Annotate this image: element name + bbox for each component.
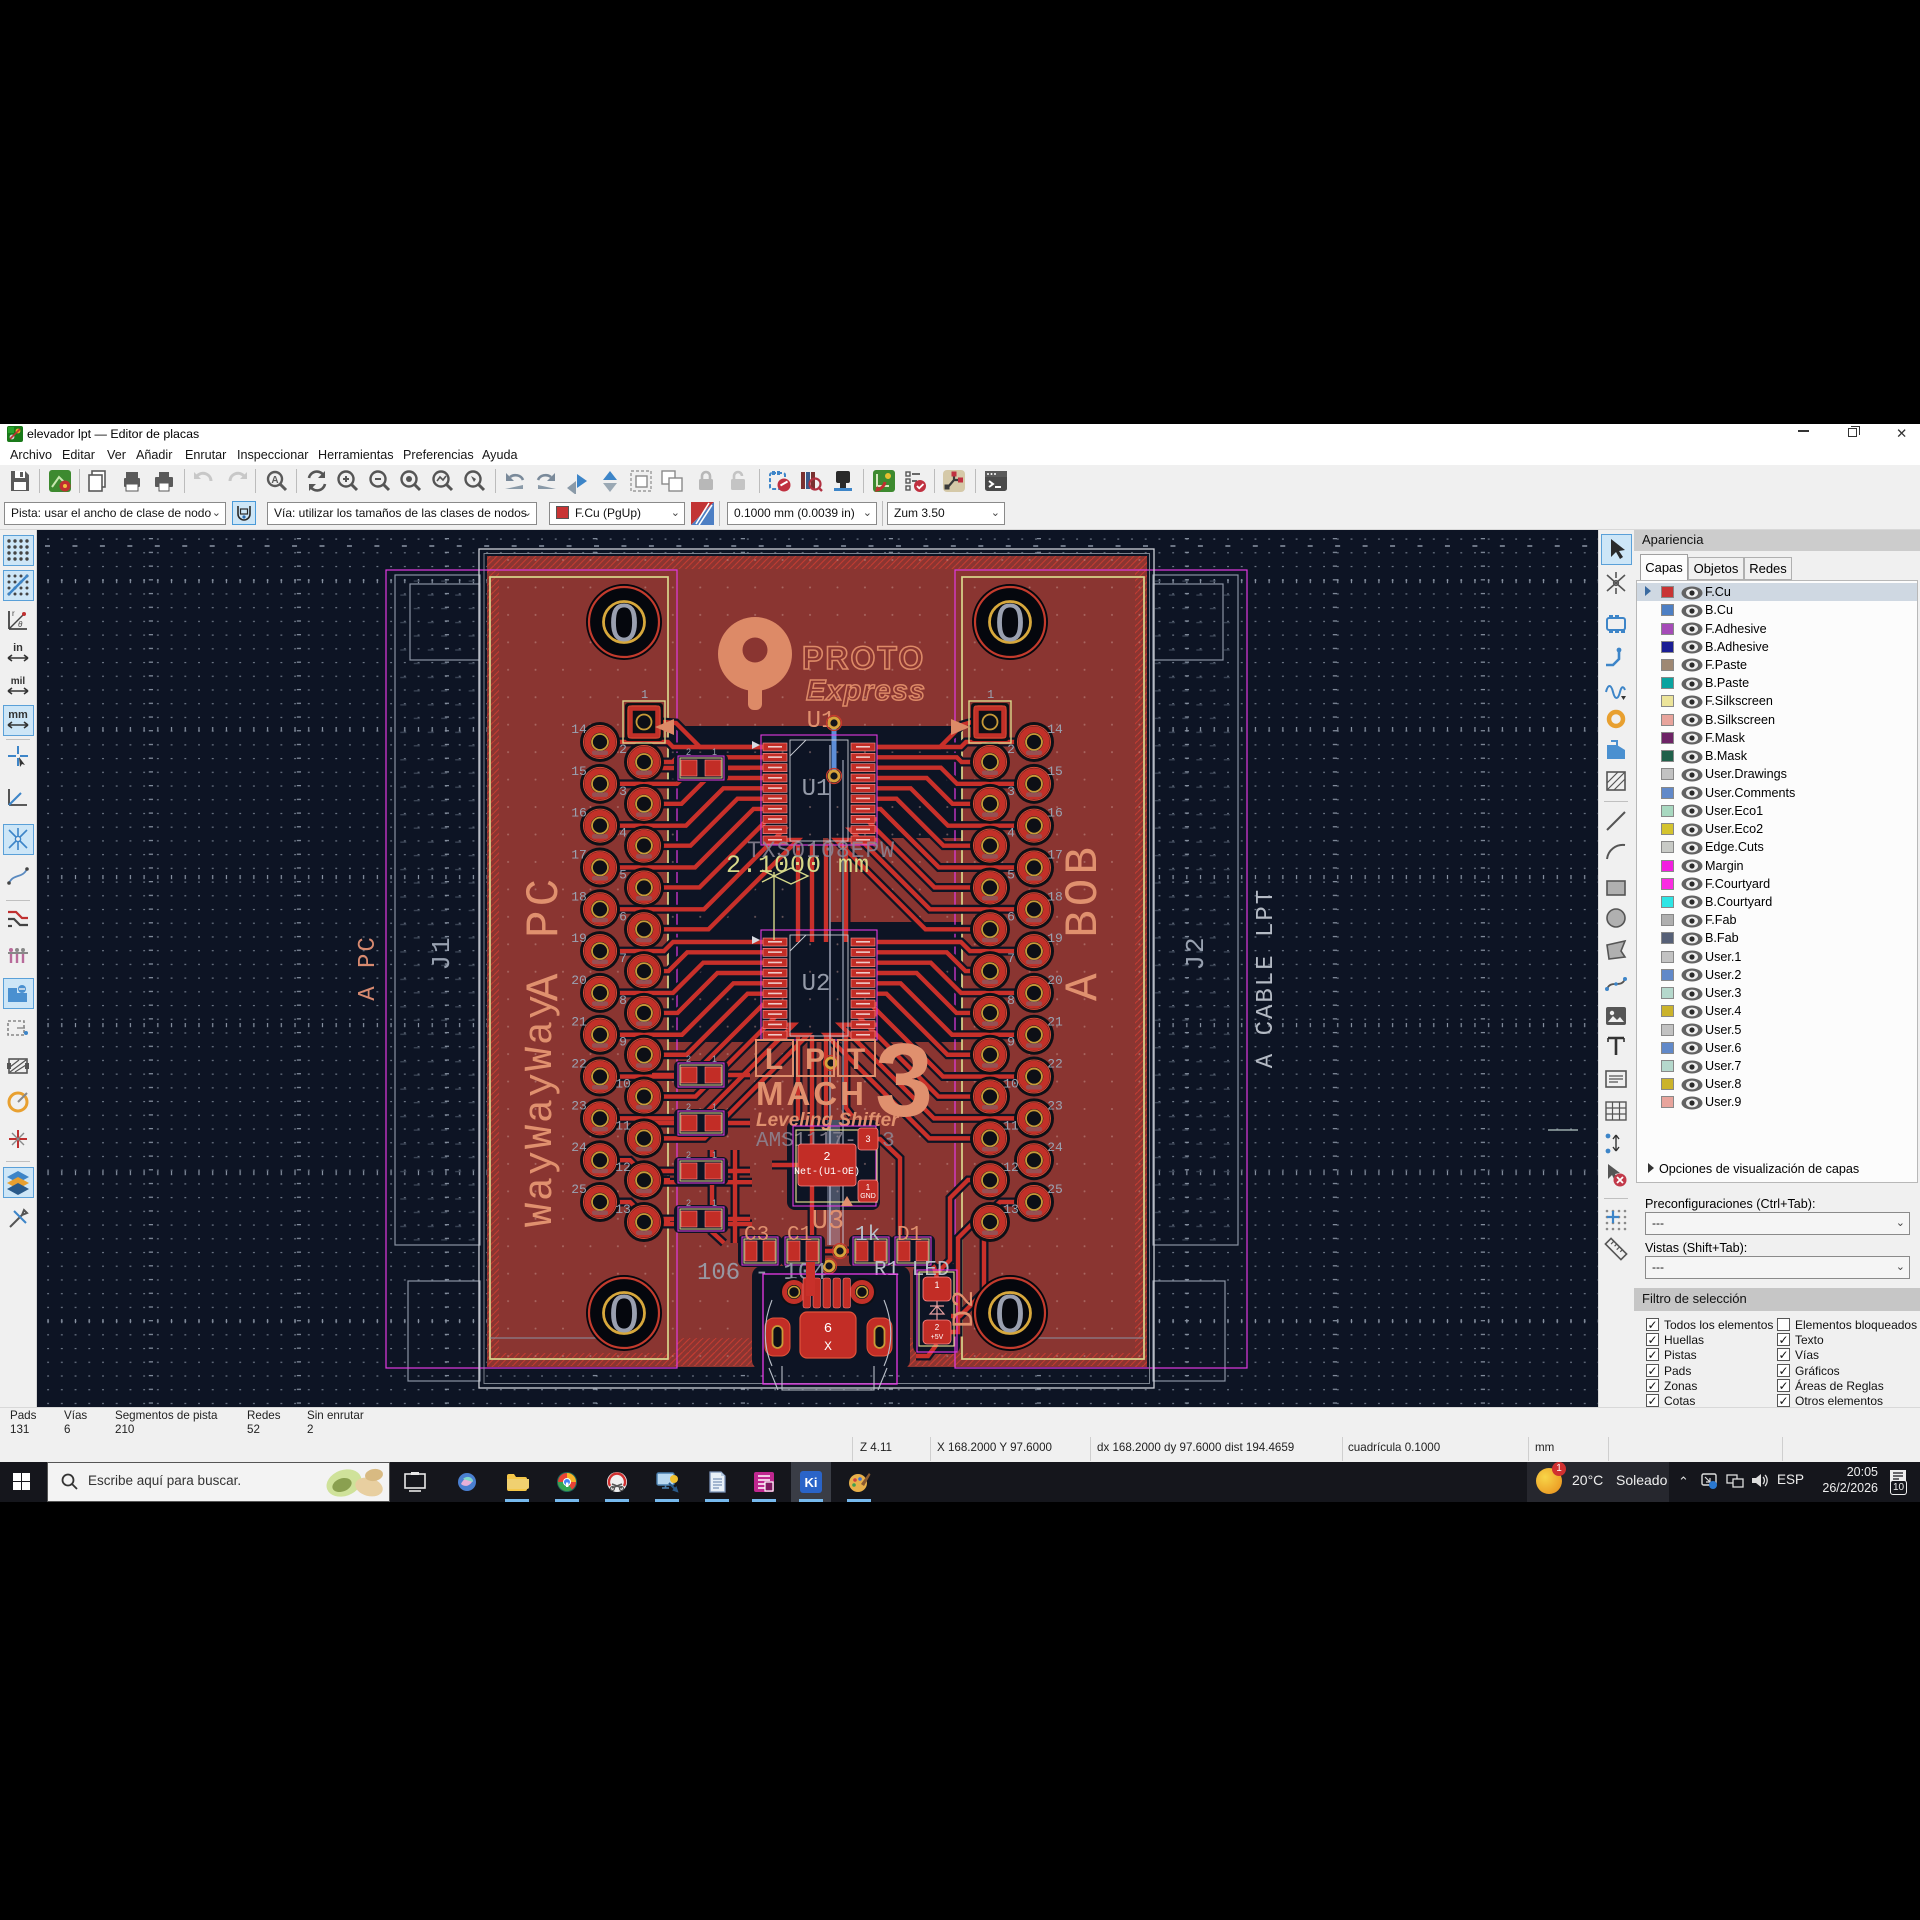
svg-text:A CABLE LPT: A CABLE LPT <box>1253 888 1280 1068</box>
svg-text:25: 25 <box>571 1182 587 1197</box>
svg-text:L: L <box>765 1043 783 1076</box>
svg-text:19: 19 <box>571 931 587 946</box>
svg-text:U1: U1 <box>802 776 831 803</box>
svg-text:23: 23 <box>1047 1098 1063 1113</box>
svg-text:WayWayWay: WayWayWay <box>519 993 564 1227</box>
svg-text:15: 15 <box>571 764 587 779</box>
svg-text:Leveling Shifter: Leveling Shifter <box>756 1110 900 1131</box>
svg-text:12: 12 <box>1003 1160 1019 1175</box>
svg-text:3: 3 <box>865 1134 870 1144</box>
svg-text:r: r <box>12 609 15 618</box>
svg-text:5: 5 <box>619 867 627 882</box>
svg-text:4: 4 <box>619 826 627 841</box>
svg-text:2: 2 <box>619 742 627 757</box>
svg-text:1: 1 <box>712 1102 717 1112</box>
svg-text:mil: mil <box>11 676 26 687</box>
svg-text:Net-(U1-OE): Net-(U1-OE) <box>794 1166 860 1178</box>
svg-text:J2: J2 <box>1181 935 1211 970</box>
svg-text:MACH: MACH <box>756 1075 867 1112</box>
svg-text:7: 7 <box>619 951 627 966</box>
svg-text:1: 1 <box>987 688 994 702</box>
svg-text:θ: θ <box>18 620 23 629</box>
svg-text:15: 15 <box>1047 764 1063 779</box>
svg-text:22: 22 <box>571 1057 587 1072</box>
svg-text:TXS0108EPW: TXS0108EPW <box>747 838 895 864</box>
svg-text:+5V: +5V <box>931 1334 944 1341</box>
svg-text:13: 13 <box>1003 1202 1019 1217</box>
svg-text:X: X <box>824 1339 832 1354</box>
svg-text:2: 2 <box>1007 742 1015 757</box>
svg-text:0: 0 <box>609 1284 639 1344</box>
svg-text:14: 14 <box>1047 722 1063 737</box>
svg-text:11: 11 <box>1003 1118 1019 1133</box>
svg-text:A BOB: A BOB <box>1058 843 1110 1001</box>
svg-text:0: 0 <box>995 593 1025 653</box>
svg-text:21: 21 <box>1047 1015 1063 1030</box>
svg-text:2: 2 <box>935 1323 940 1332</box>
svg-text:1: 1 <box>712 747 717 757</box>
svg-text:mm: mm <box>8 709 28 721</box>
svg-text:9: 9 <box>1007 1035 1015 1050</box>
svg-text:16: 16 <box>1047 806 1063 821</box>
svg-text:Ki: Ki <box>805 1475 818 1490</box>
svg-text:1: 1 <box>641 688 648 702</box>
svg-text:5: 5 <box>1007 867 1015 882</box>
svg-text:1: 1 <box>712 1054 717 1064</box>
svg-text:8: 8 <box>1007 993 1015 1008</box>
svg-text:2: 2 <box>686 1102 691 1112</box>
svg-text:2: 2 <box>686 1198 691 1208</box>
svg-text:0: 0 <box>995 1284 1025 1344</box>
svg-text:9: 9 <box>619 1035 627 1050</box>
svg-text:2: 2 <box>823 1150 830 1164</box>
svg-text:23: 23 <box>571 1098 587 1113</box>
svg-text:U3: U3 <box>812 1207 844 1237</box>
svg-text:24: 24 <box>571 1140 587 1155</box>
svg-text:1k: 1k <box>855 1224 880 1247</box>
svg-text:T: T <box>847 1043 865 1076</box>
svg-text:D1: D1 <box>897 1224 922 1247</box>
svg-text:P: P <box>805 1043 825 1076</box>
svg-text:4: 4 <box>1007 826 1015 841</box>
svg-text:7: 7 <box>1007 951 1015 966</box>
svg-text:18: 18 <box>571 889 587 904</box>
svg-text:10: 10 <box>615 1077 631 1092</box>
svg-text:GND: GND <box>860 1193 876 1200</box>
svg-text:1: 1 <box>712 1198 717 1208</box>
svg-text:22: 22 <box>1047 1057 1063 1072</box>
svg-text:J1: J1 <box>427 935 457 970</box>
svg-text:2: 2 <box>686 747 691 757</box>
svg-text:25: 25 <box>1047 1182 1063 1197</box>
svg-text:6: 6 <box>619 909 627 924</box>
svg-text:21: 21 <box>571 1015 587 1030</box>
svg-text:U2: U2 <box>802 971 831 998</box>
svg-text:A PC: A PC <box>519 875 571 1001</box>
svg-text:13: 13 <box>615 1202 631 1217</box>
svg-text:A: A <box>271 475 278 486</box>
svg-text:C1: C1 <box>787 1224 812 1247</box>
svg-text:2: 2 <box>686 1054 691 1064</box>
svg-text:14: 14 <box>571 722 587 737</box>
svg-text:1: 1 <box>934 1280 939 1290</box>
svg-text:in: in <box>13 642 23 654</box>
svg-text:0: 0 <box>609 593 639 653</box>
svg-text:12: 12 <box>615 1160 631 1175</box>
svg-text:1: 1 <box>866 1183 871 1192</box>
svg-text:6: 6 <box>1007 909 1015 924</box>
svg-text:3: 3 <box>619 784 627 799</box>
svg-text:A PC: A PC <box>355 935 382 1001</box>
svg-text:16: 16 <box>571 806 587 821</box>
svg-text:C3: C3 <box>744 1224 769 1247</box>
svg-text:PROTO: PROTO <box>802 640 925 676</box>
svg-text:20: 20 <box>571 973 587 988</box>
svg-text:D2: D2 <box>948 1288 982 1328</box>
svg-text:1: 1 <box>712 1150 717 1160</box>
svg-text:24: 24 <box>1047 1140 1063 1155</box>
svg-text:8: 8 <box>619 993 627 1008</box>
svg-text:10: 10 <box>1003 1077 1019 1092</box>
svg-text:17: 17 <box>571 847 587 862</box>
svg-text:6: 6 <box>824 1321 832 1337</box>
svg-text:Express: Express <box>806 675 926 707</box>
svg-text:3: 3 <box>1007 784 1015 799</box>
svg-text:11: 11 <box>615 1118 631 1133</box>
svg-text:2: 2 <box>686 1150 691 1160</box>
